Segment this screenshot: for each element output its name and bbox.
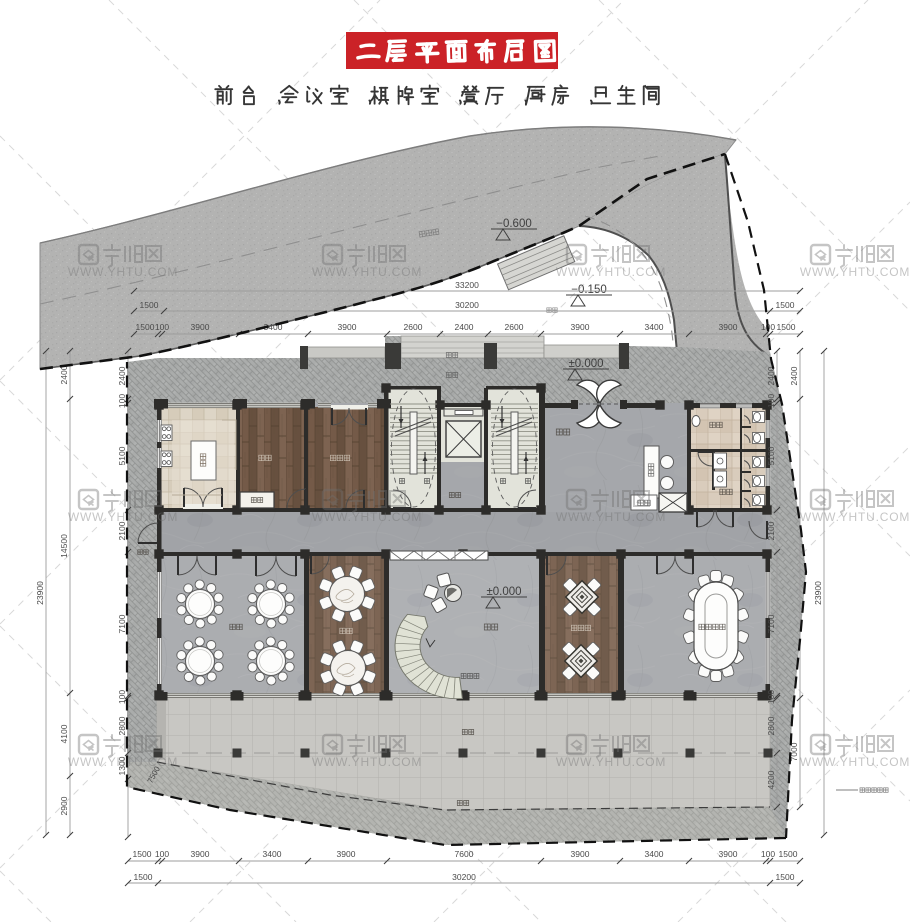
svg-text:2400: 2400 bbox=[59, 365, 69, 384]
svg-text:4100: 4100 bbox=[59, 724, 69, 743]
svg-text:WWW.YHTU.COM: WWW.YHTU.COM bbox=[312, 265, 422, 279]
svg-text:±0.000: ±0.000 bbox=[486, 586, 521, 598]
svg-text:1500: 1500 bbox=[133, 849, 152, 859]
svg-text:3900: 3900 bbox=[571, 849, 590, 859]
svg-text:100: 100 bbox=[761, 849, 775, 859]
svg-text:2800: 2800 bbox=[766, 716, 776, 735]
svg-text:3900: 3900 bbox=[191, 849, 210, 859]
svg-text:±0.000: ±0.000 bbox=[568, 358, 603, 370]
svg-text:5100: 5100 bbox=[766, 446, 776, 465]
svg-text:1500: 1500 bbox=[776, 872, 795, 882]
svg-text:2800: 2800 bbox=[117, 716, 127, 735]
svg-text:3400: 3400 bbox=[645, 849, 664, 859]
svg-text:3900: 3900 bbox=[338, 322, 357, 332]
svg-text:100: 100 bbox=[117, 394, 127, 408]
svg-text:3900: 3900 bbox=[337, 849, 356, 859]
svg-text:WWW.YHTU.COM: WWW.YHTU.COM bbox=[312, 510, 422, 524]
svg-text:7100: 7100 bbox=[117, 614, 127, 633]
svg-text:30200: 30200 bbox=[452, 872, 476, 882]
svg-text:2600: 2600 bbox=[505, 322, 524, 332]
svg-text:14500: 14500 bbox=[59, 534, 69, 558]
svg-text:2400: 2400 bbox=[117, 366, 127, 385]
svg-text:1500: 1500 bbox=[134, 872, 153, 882]
svg-text:100: 100 bbox=[155, 849, 169, 859]
svg-text:4200: 4200 bbox=[766, 770, 776, 789]
svg-text:3900: 3900 bbox=[719, 849, 738, 859]
svg-text:3900: 3900 bbox=[719, 322, 738, 332]
svg-text:1500: 1500 bbox=[777, 322, 796, 332]
svg-text:2900: 2900 bbox=[59, 796, 69, 815]
svg-text:1500: 1500 bbox=[779, 849, 798, 859]
svg-text:WWW.YHTU.COM: WWW.YHTU.COM bbox=[68, 755, 178, 769]
svg-text:30200: 30200 bbox=[455, 300, 479, 310]
svg-text:1500: 1500 bbox=[136, 322, 155, 332]
svg-text:2100: 2100 bbox=[766, 521, 776, 540]
svg-text:2600: 2600 bbox=[404, 322, 423, 332]
svg-text:23900: 23900 bbox=[813, 581, 823, 605]
svg-text:33200: 33200 bbox=[455, 280, 479, 290]
svg-text:WWW.YHTU.COM: WWW.YHTU.COM bbox=[556, 755, 666, 769]
svg-text:3900: 3900 bbox=[571, 322, 590, 332]
svg-text:1500: 1500 bbox=[140, 300, 159, 310]
svg-text:7600: 7600 bbox=[455, 849, 474, 859]
svg-text:100: 100 bbox=[117, 690, 127, 704]
svg-text:3400: 3400 bbox=[645, 322, 664, 332]
svg-text:−0.600: −0.600 bbox=[496, 218, 532, 230]
svg-text:−0.150: −0.150 bbox=[571, 284, 607, 296]
svg-text:WWW.YHTU.COM: WWW.YHTU.COM bbox=[312, 755, 422, 769]
svg-text:100: 100 bbox=[155, 322, 169, 332]
svg-text:3400: 3400 bbox=[263, 849, 282, 859]
svg-text:WWW.YHTU.COM: WWW.YHTU.COM bbox=[68, 510, 178, 524]
svg-text:WWW.YHTU.COM: WWW.YHTU.COM bbox=[556, 265, 666, 279]
svg-text:5100: 5100 bbox=[117, 446, 127, 465]
svg-text:7100: 7100 bbox=[766, 614, 776, 633]
svg-text:WWW.YHTU.COM: WWW.YHTU.COM bbox=[68, 265, 178, 279]
svg-text:100: 100 bbox=[766, 394, 776, 408]
svg-text:23900: 23900 bbox=[35, 581, 45, 605]
svg-text:WWW.YHTU.COM: WWW.YHTU.COM bbox=[556, 510, 666, 524]
svg-text:1500: 1500 bbox=[776, 300, 795, 310]
svg-text:2100: 2100 bbox=[117, 521, 127, 540]
svg-text:3900: 3900 bbox=[191, 322, 210, 332]
svg-text:2400: 2400 bbox=[455, 322, 474, 332]
svg-text:WWW.YHTU.COM: WWW.YHTU.COM bbox=[800, 265, 910, 279]
svg-text:2400: 2400 bbox=[789, 366, 799, 385]
svg-text:WWW.YHTU.COM: WWW.YHTU.COM bbox=[800, 755, 910, 769]
svg-text:100: 100 bbox=[766, 690, 776, 704]
svg-text:WWW.YHTU.COM: WWW.YHTU.COM bbox=[800, 510, 910, 524]
